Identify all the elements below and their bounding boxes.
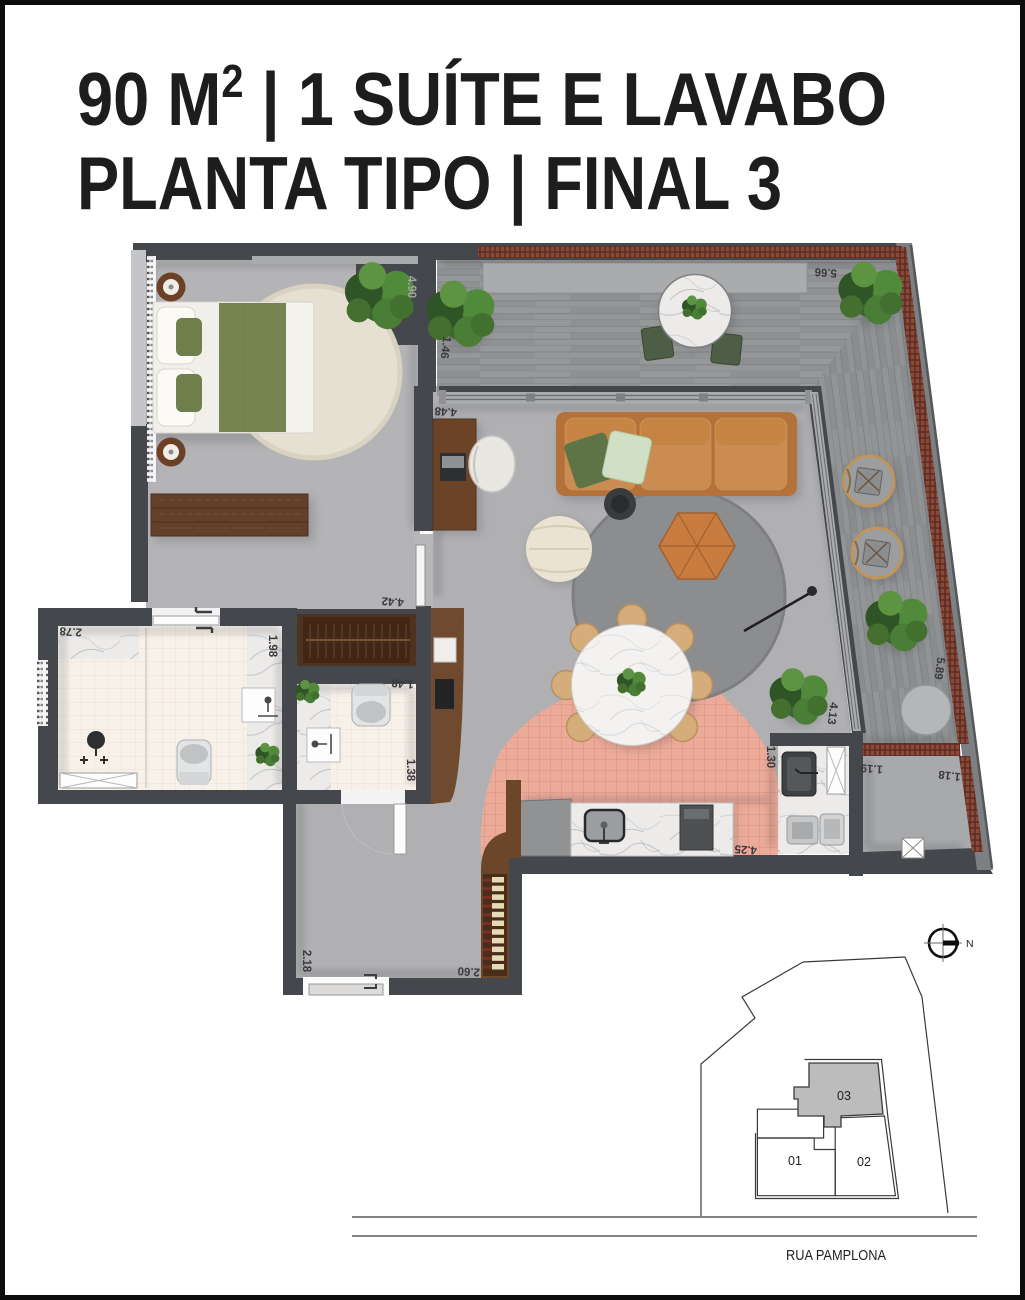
svg-text:2.60: 2.60 (457, 964, 480, 978)
svg-text:1.98: 1.98 (266, 635, 278, 658)
svg-text:03: 03 (837, 1089, 851, 1103)
svg-text:5.66: 5.66 (814, 265, 837, 279)
svg-text:4.48: 4.48 (434, 404, 458, 418)
svg-text:4.42: 4.42 (381, 594, 404, 608)
svg-text:PLANTA TIPO | FINAL 3: PLANTA TIPO | FINAL 3 (77, 141, 782, 226)
svg-text:N: N (966, 938, 974, 950)
svg-text:1.19: 1.19 (860, 761, 883, 775)
svg-text:1.30: 1.30 (764, 746, 776, 768)
svg-text:RUA PAMPLONA: RUA PAMPLONA (786, 1248, 886, 1264)
svg-text:01: 01 (788, 1154, 802, 1168)
svg-text:02: 02 (857, 1155, 871, 1169)
svg-text:4.25: 4.25 (734, 842, 758, 856)
svg-text:4.90: 4.90 (405, 276, 417, 298)
svg-text:2.18: 2.18 (300, 950, 312, 973)
svg-text:2.78: 2.78 (59, 624, 83, 638)
svg-text:1.38: 1.38 (404, 759, 416, 782)
svg-text:90 M2 | 1 SUÍTE E LAVABO: 90 M2 | 1 SUÍTE E LAVABO (77, 55, 887, 142)
svg-text:1.48: 1.48 (391, 676, 415, 690)
